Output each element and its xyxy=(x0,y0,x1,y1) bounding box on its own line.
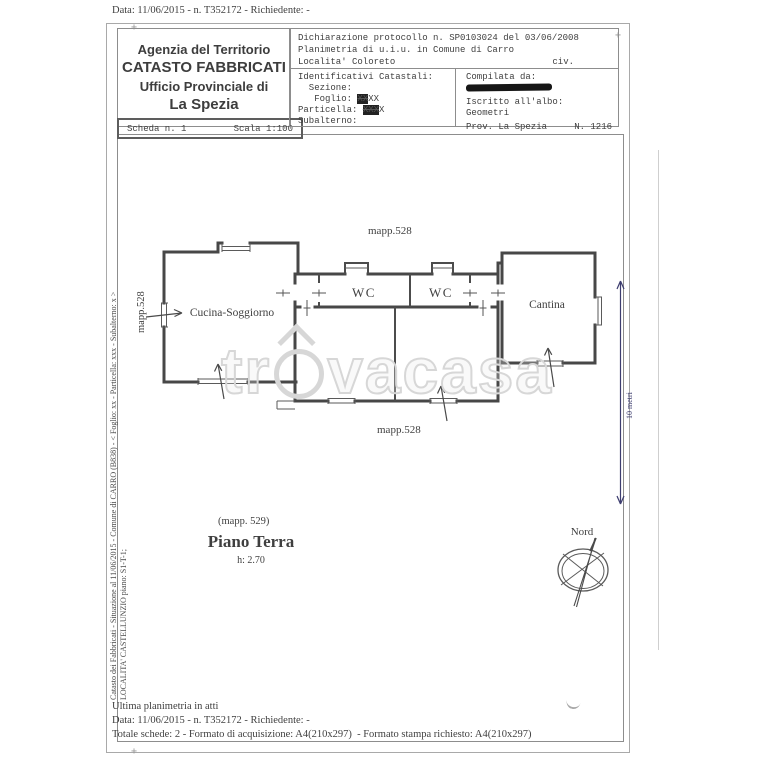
declaration-box: Dichiarazione protocollo n. SP0103024 de… xyxy=(289,28,619,127)
scanned-cadastral-document: { "page": { "top_line": "Data: 11/06/201… xyxy=(0,0,768,768)
footer-data-line: Data: 11/06/2015 - n. T352172 - Richiede… xyxy=(112,715,310,726)
particella-redacted: XXX xyxy=(363,105,379,115)
foglio-row: Foglio: XXXX xyxy=(298,94,455,105)
plan-windows xyxy=(161,243,602,409)
floor-title: Piano Terra xyxy=(196,532,306,552)
cadastral-identifiers-section: Identificativi Catastali: Sezione: Fogli… xyxy=(290,69,456,126)
albo-value: Geometri xyxy=(466,108,612,119)
office-line: Ufficio Provinciale di xyxy=(140,78,269,95)
iscritto-label: Iscritto all'albo: xyxy=(466,97,612,108)
office-header-box: Agenzia del Territorio CATASTO FABBRICAT… xyxy=(117,28,291,127)
province-name: La Spezia xyxy=(169,95,238,115)
room-label-cantina: Cantina xyxy=(529,299,565,311)
compass-rose: Nord xyxy=(540,518,610,613)
prov-label: Prov. La Spezia xyxy=(466,122,547,133)
register-mark: + xyxy=(131,746,137,757)
plan-partitions xyxy=(319,263,470,401)
scale-bar-label: 10 metri xyxy=(625,392,634,419)
identifiers-title: Identificativi Catastali: xyxy=(298,72,455,83)
declaration-section: Dichiarazione protocollo n. SP0103024 de… xyxy=(290,29,618,69)
room-label-wc2: WC xyxy=(429,285,453,300)
footer-totale-line: Totale schede: 2 - Formato di acquisizio… xyxy=(112,729,531,740)
protocol-line: Dichiarazione protocollo n. SP0103024 de… xyxy=(298,32,610,44)
ceiling-height: h: 2.70 xyxy=(196,555,306,566)
scan-edge-line xyxy=(658,150,659,650)
scale-value: Scala 1:100 xyxy=(234,124,293,134)
floor-plan-drawing: Cucina-Soggiorno WC WC Cantina xyxy=(140,235,620,427)
particella-row: Particella: XXXX xyxy=(298,105,455,116)
register-number: N. 1216 xyxy=(574,122,612,133)
sidebar-locality-text: LOCALITA' CASTELLUNZIO piano: S1-T-1; xyxy=(119,549,128,700)
sidebar-cadastral-text: Catasto dei Fabbricati - Situazione al 1… xyxy=(109,292,118,700)
room-label-wc1: WC xyxy=(352,285,376,300)
scheda-number: Scheda n. 1 xyxy=(127,124,186,134)
footer-ultima-line: Ultima planimetria in atti xyxy=(112,701,218,712)
redacted-name-blob xyxy=(466,83,552,91)
civ-label: civ. xyxy=(552,56,574,68)
scheda-scala-box: Scheda n. 1 Scala 1:100 xyxy=(117,118,303,139)
foglio-redacted: XX xyxy=(357,94,368,104)
mapp-529-label: (mapp. 529) xyxy=(218,516,269,527)
compiler-label: Compilata da: xyxy=(466,72,612,83)
compiler-section: Compilata da: Iscritto all'albo: Geometr… xyxy=(456,69,618,126)
request-data-line: Data: 11/06/2015 - n. T352172 - Richiede… xyxy=(112,5,310,16)
entrance-arrows xyxy=(146,310,554,422)
planimetria-line: Planimetria di u.i.u. in Comune di Carro xyxy=(298,44,610,56)
sezione-row: Sezione: xyxy=(298,83,455,94)
agency-name: Agenzia del Territorio xyxy=(138,41,271,58)
subalterno-row: Subalterno: xyxy=(298,116,455,127)
plan-outer-walls xyxy=(164,243,595,401)
room-label-kitchen: Cucina-Soggiorno xyxy=(190,307,275,319)
catasto-title: CATASTO FABBRICATI xyxy=(122,58,286,78)
locality: Localita' Coloreto xyxy=(298,56,395,68)
compass-north-label: Nord xyxy=(571,526,594,538)
